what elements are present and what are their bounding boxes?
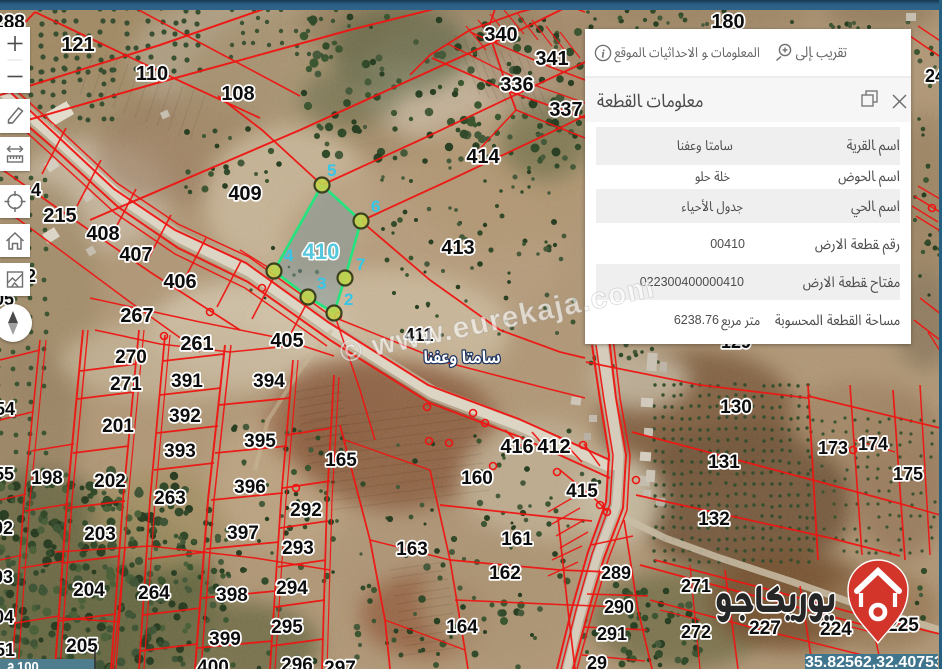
- svg-text:395: 395: [244, 431, 276, 452]
- svg-text:51: 51: [0, 640, 15, 660]
- svg-text:297: 297: [324, 658, 356, 669]
- svg-text:289: 289: [601, 563, 631, 583]
- svg-text:121: 121: [61, 34, 94, 56]
- svg-text:399: 399: [209, 629, 241, 650]
- svg-text:340: 340: [484, 24, 517, 46]
- svg-text:295: 295: [271, 617, 303, 638]
- svg-text:294: 294: [276, 578, 308, 599]
- svg-text:201: 201: [102, 416, 134, 437]
- svg-text:6: 6: [371, 197, 380, 216]
- svg-text:400: 400: [197, 657, 229, 669]
- svg-text:414: 414: [466, 146, 500, 168]
- svg-text:198: 198: [31, 468, 63, 489]
- svg-text:409: 409: [228, 183, 261, 205]
- svg-text:290: 290: [604, 597, 634, 617]
- svg-text:130: 130: [720, 397, 752, 418]
- svg-text:175: 175: [893, 464, 923, 484]
- svg-text:393: 393: [164, 441, 196, 462]
- svg-text:108: 108: [221, 83, 254, 105]
- svg-text:4: 4: [31, 180, 41, 200]
- svg-text:296: 296: [281, 655, 313, 669]
- svg-text:54: 54: [0, 399, 15, 419]
- svg-text:407: 407: [119, 244, 152, 266]
- svg-text:341: 341: [535, 48, 568, 70]
- svg-text:397: 397: [227, 523, 259, 544]
- svg-text:292: 292: [290, 500, 322, 521]
- svg-text:04: 04: [0, 607, 14, 627]
- svg-text:394: 394: [253, 371, 285, 392]
- svg-text:413: 413: [441, 237, 474, 259]
- svg-text:412: 412: [537, 436, 570, 458]
- svg-text:205: 205: [66, 636, 98, 657]
- svg-text:392: 392: [169, 406, 201, 427]
- svg-text:7: 7: [356, 255, 365, 274]
- svg-text:164: 164: [446, 617, 478, 638]
- svg-text:408: 408: [86, 223, 119, 245]
- svg-text:405: 405: [270, 330, 303, 352]
- svg-text:3: 3: [317, 274, 326, 293]
- svg-text:173: 173: [818, 438, 848, 458]
- svg-text:263: 263: [154, 488, 186, 509]
- svg-text:398: 398: [216, 585, 248, 606]
- svg-text:415: 415: [566, 481, 598, 502]
- svg-text:291: 291: [597, 624, 627, 644]
- svg-text:4: 4: [284, 246, 294, 265]
- svg-text:391: 391: [171, 371, 203, 392]
- svg-text:271: 271: [110, 374, 142, 395]
- svg-text:267: 267: [120, 305, 153, 327]
- svg-text:174: 174: [858, 434, 888, 454]
- svg-text:215: 215: [43, 205, 76, 227]
- svg-text:410: 410: [303, 239, 340, 264]
- svg-text:110: 110: [136, 63, 168, 85]
- svg-text:336: 336: [500, 74, 533, 96]
- svg-text:55: 55: [0, 464, 14, 484]
- svg-text:202: 202: [94, 471, 126, 492]
- svg-text:293: 293: [282, 538, 314, 559]
- svg-text:406: 406: [163, 271, 196, 293]
- svg-text:2: 2: [344, 290, 353, 309]
- svg-text:160: 160: [461, 468, 493, 489]
- svg-text:416: 416: [500, 436, 533, 458]
- svg-text:396: 396: [234, 477, 266, 498]
- svg-text:337: 337: [549, 99, 582, 121]
- svg-text:162: 162: [489, 563, 521, 584]
- svg-text:203: 203: [84, 524, 116, 545]
- svg-text:261: 261: [180, 333, 213, 355]
- svg-text:163: 163: [396, 539, 428, 560]
- svg-text:204: 204: [73, 580, 105, 601]
- svg-text:03: 03: [0, 567, 13, 587]
- svg-text:161: 161: [501, 529, 533, 550]
- svg-text:29: 29: [587, 653, 607, 669]
- svg-text:02: 02: [0, 518, 13, 538]
- svg-text:270: 270: [115, 347, 147, 368]
- svg-text:264: 264: [138, 583, 170, 604]
- svg-text:132: 132: [698, 509, 730, 530]
- svg-text:131: 131: [708, 452, 740, 473]
- svg-text:165: 165: [325, 450, 357, 471]
- svg-text:5: 5: [327, 161, 336, 180]
